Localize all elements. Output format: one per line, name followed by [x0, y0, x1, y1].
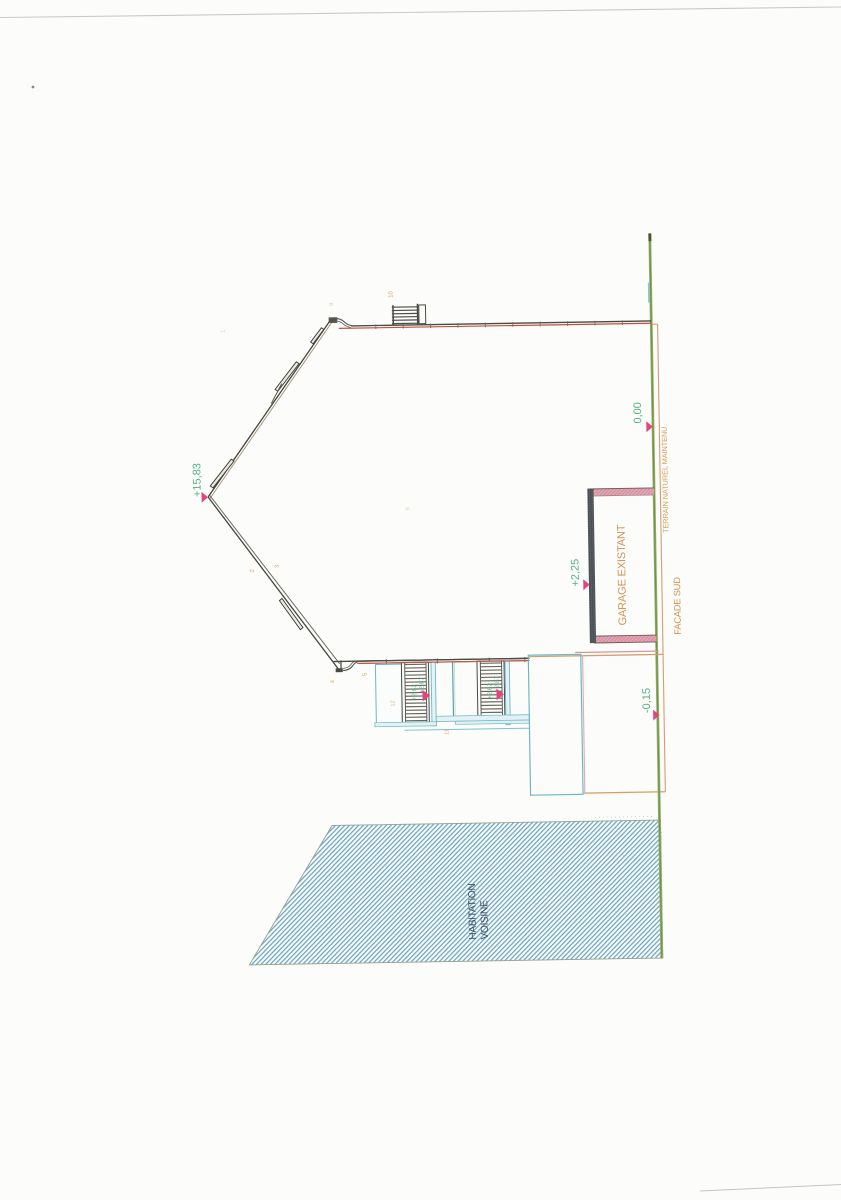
svg-text:6: 6 [405, 507, 411, 510]
svg-text:11: 11 [444, 729, 450, 735]
svg-text:+2,62: +2,62 [487, 682, 494, 699]
svg-text:HABITATION: HABITATION [467, 883, 479, 939]
svg-text:2: 2 [250, 569, 256, 572]
svg-text:10: 10 [388, 291, 394, 298]
svg-text:5: 5 [363, 673, 369, 676]
svg-text:9: 9 [329, 303, 335, 306]
svg-text:3: 3 [275, 565, 281, 568]
svg-text:0,00: 0,00 [632, 402, 644, 424]
svg-text:FACADE SUD: FACADE SUD [672, 577, 683, 635]
svg-text:1: 1 [221, 330, 227, 333]
svg-text:+2,25: +2,25 [569, 559, 581, 587]
svg-text:+15,83: +15,83 [191, 463, 204, 497]
svg-text:+2,87: +2,87 [418, 677, 425, 694]
svg-text:TERRAIN NATUREL MAINTENU: TERRAIN NATUREL MAINTENU [660, 427, 671, 534]
svg-text:VOISINE: VOISINE [479, 900, 491, 940]
svg-text:-0,15: -0,15 [641, 688, 653, 713]
svg-text:12: 12 [390, 700, 396, 707]
svg-text:GARAGE EXISTANT: GARAGE EXISTANT [616, 524, 630, 625]
svg-text:+2,62: +2,62 [411, 684, 418, 701]
